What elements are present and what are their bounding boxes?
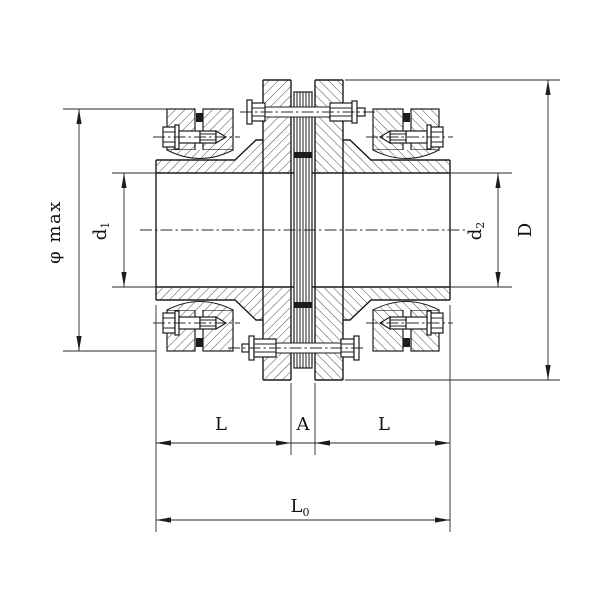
arrow-left bbox=[156, 517, 171, 522]
engineering-drawing-canvas: φ max d1 d2 D L A L L0 bbox=[0, 0, 600, 600]
left-flange-root-top bbox=[235, 140, 263, 160]
clamp-block bbox=[373, 109, 403, 150]
clamp-block bbox=[203, 310, 233, 351]
arrow-down bbox=[495, 272, 500, 287]
label-L-right: L bbox=[378, 414, 390, 435]
label-L-left: L bbox=[215, 414, 227, 435]
label-L0: L0 bbox=[291, 496, 310, 519]
clamp-block bbox=[373, 310, 403, 351]
arrow-left bbox=[156, 440, 171, 445]
label-D: D bbox=[515, 223, 536, 237]
label-d1-base: d bbox=[90, 229, 111, 241]
label-d2-base: d bbox=[465, 229, 486, 241]
arrow-right bbox=[276, 440, 291, 445]
right-hub-wall-top bbox=[343, 160, 450, 173]
left-hub-wall-top bbox=[156, 160, 263, 173]
left-flange-root-bottom bbox=[235, 300, 263, 320]
clamp-block bbox=[203, 109, 233, 150]
arrow-left bbox=[315, 440, 330, 445]
membrane-spacer-top bbox=[294, 152, 312, 158]
coupling-section-drawing: φ max d1 d2 D L A L L0 bbox=[0, 0, 600, 600]
label-A: A bbox=[296, 414, 311, 435]
arrow-down bbox=[545, 365, 550, 380]
clamp-slit-block bbox=[196, 113, 203, 122]
left-flange-upper bbox=[263, 80, 291, 173]
right-flange-root-top bbox=[343, 140, 371, 160]
membrane-spacer-bottom bbox=[294, 302, 312, 308]
dim-L0: L0 bbox=[156, 496, 450, 523]
right-hub-wall-bottom bbox=[343, 287, 450, 300]
arrow-down bbox=[76, 336, 81, 351]
arrow-right bbox=[435, 440, 450, 445]
arrow-down bbox=[121, 272, 126, 287]
right-flange-lower bbox=[315, 287, 343, 380]
clamp-slit-block bbox=[403, 113, 410, 122]
arrow-right bbox=[435, 517, 450, 522]
label-d1-subscript: 1 bbox=[99, 222, 112, 229]
left-flange-lower bbox=[263, 287, 291, 380]
right-flange-root-bottom bbox=[343, 300, 371, 320]
right-flange-upper bbox=[315, 80, 343, 173]
left-hub-wall-bottom bbox=[156, 287, 263, 300]
label-d1: d1 bbox=[90, 222, 112, 241]
label-L0-subscript: 0 bbox=[302, 506, 309, 519]
label-L0-base: L bbox=[291, 496, 303, 517]
clamp-slit-block bbox=[196, 338, 203, 347]
arrow-up bbox=[76, 109, 81, 124]
arrow-up bbox=[121, 173, 126, 188]
label-phi-max: φ max bbox=[44, 200, 65, 264]
label-d2: d2 bbox=[465, 222, 487, 241]
label-d2-subscript: 2 bbox=[474, 222, 487, 229]
arrow-up bbox=[545, 80, 550, 95]
clamp-slit-block bbox=[403, 338, 410, 347]
arrow-up bbox=[495, 173, 500, 188]
